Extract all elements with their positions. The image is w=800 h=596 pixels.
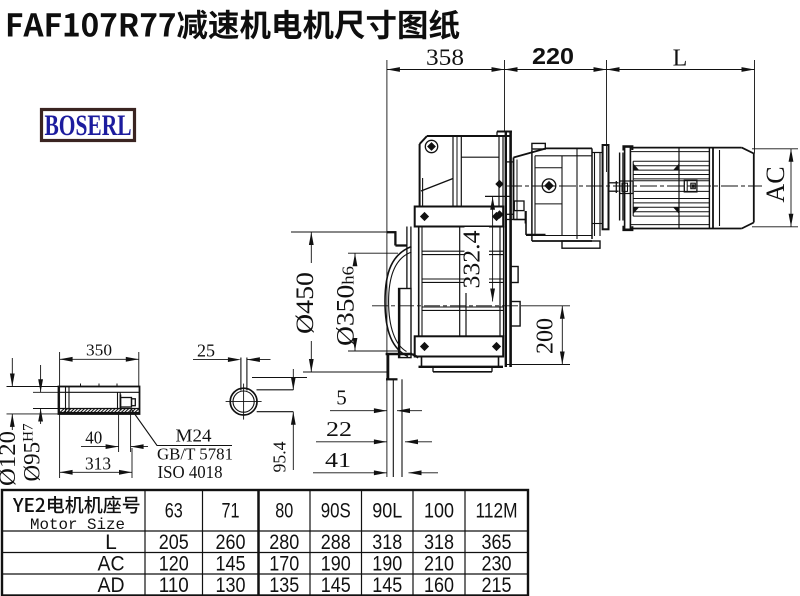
svg-text:260: 260 (216, 531, 246, 554)
svg-text:318: 318 (372, 531, 402, 554)
svg-text:L: L (673, 46, 688, 72)
svg-text:L: L (105, 531, 117, 554)
svg-text:365: 365 (482, 531, 512, 554)
svg-text:40: 40 (85, 428, 102, 448)
svg-text:90L: 90L (372, 499, 402, 522)
svg-text:318: 318 (424, 531, 454, 554)
svg-text:215: 215 (482, 574, 512, 596)
svg-text:ISO 4018: ISO 4018 (158, 462, 223, 482)
svg-text:332.4: 332.4 (460, 231, 486, 289)
svg-text:145: 145 (321, 574, 351, 596)
svg-text:358: 358 (426, 45, 464, 70)
svg-text:25: 25 (197, 341, 215, 361)
svg-text:120: 120 (159, 553, 189, 576)
svg-text:95.4: 95.4 (270, 442, 290, 473)
svg-text:Ø450: Ø450 (292, 272, 319, 334)
svg-text:110: 110 (159, 574, 189, 596)
svg-text:Ø120: Ø120 (0, 431, 20, 486)
svg-text:AC: AC (761, 166, 790, 202)
svg-text:210: 210 (424, 553, 454, 576)
svg-text:22: 22 (326, 417, 352, 441)
svg-text:190: 190 (321, 553, 351, 576)
svg-text:135: 135 (269, 574, 299, 596)
svg-text:5: 5 (336, 386, 347, 410)
svg-text:BOSERL: BOSERL (45, 109, 132, 142)
svg-text:71: 71 (222, 499, 240, 522)
svg-text:130: 130 (216, 574, 246, 596)
svg-text:Ø95H7: Ø95H7 (20, 423, 45, 481)
svg-text:63: 63 (165, 499, 183, 522)
svg-text:Ø350h6: Ø350h6 (333, 266, 360, 346)
svg-text:190: 190 (372, 553, 402, 576)
svg-text:AC: AC (98, 553, 125, 576)
svg-text:AD: AD (98, 574, 125, 596)
svg-text:205: 205 (159, 531, 189, 554)
svg-text:M24: M24 (176, 426, 212, 446)
svg-text:170: 170 (269, 553, 299, 576)
svg-text:90S: 90S (321, 499, 351, 522)
svg-text:41: 41 (325, 448, 351, 472)
svg-text:160: 160 (424, 574, 454, 596)
svg-text:200: 200 (533, 318, 559, 354)
svg-text:145: 145 (372, 574, 402, 596)
svg-text:288: 288 (321, 531, 351, 554)
svg-text:350: 350 (86, 341, 112, 360)
svg-text:313: 313 (85, 453, 111, 473)
svg-text:80: 80 (275, 499, 293, 522)
svg-text:100: 100 (424, 499, 454, 522)
svg-text:280: 280 (269, 531, 299, 554)
svg-text:220: 220 (532, 43, 574, 69)
svg-text:145: 145 (216, 553, 246, 576)
svg-text:112M: 112M (476, 499, 518, 522)
svg-text:230: 230 (482, 553, 512, 576)
svg-text:GB/T 5781: GB/T 5781 (157, 445, 233, 464)
